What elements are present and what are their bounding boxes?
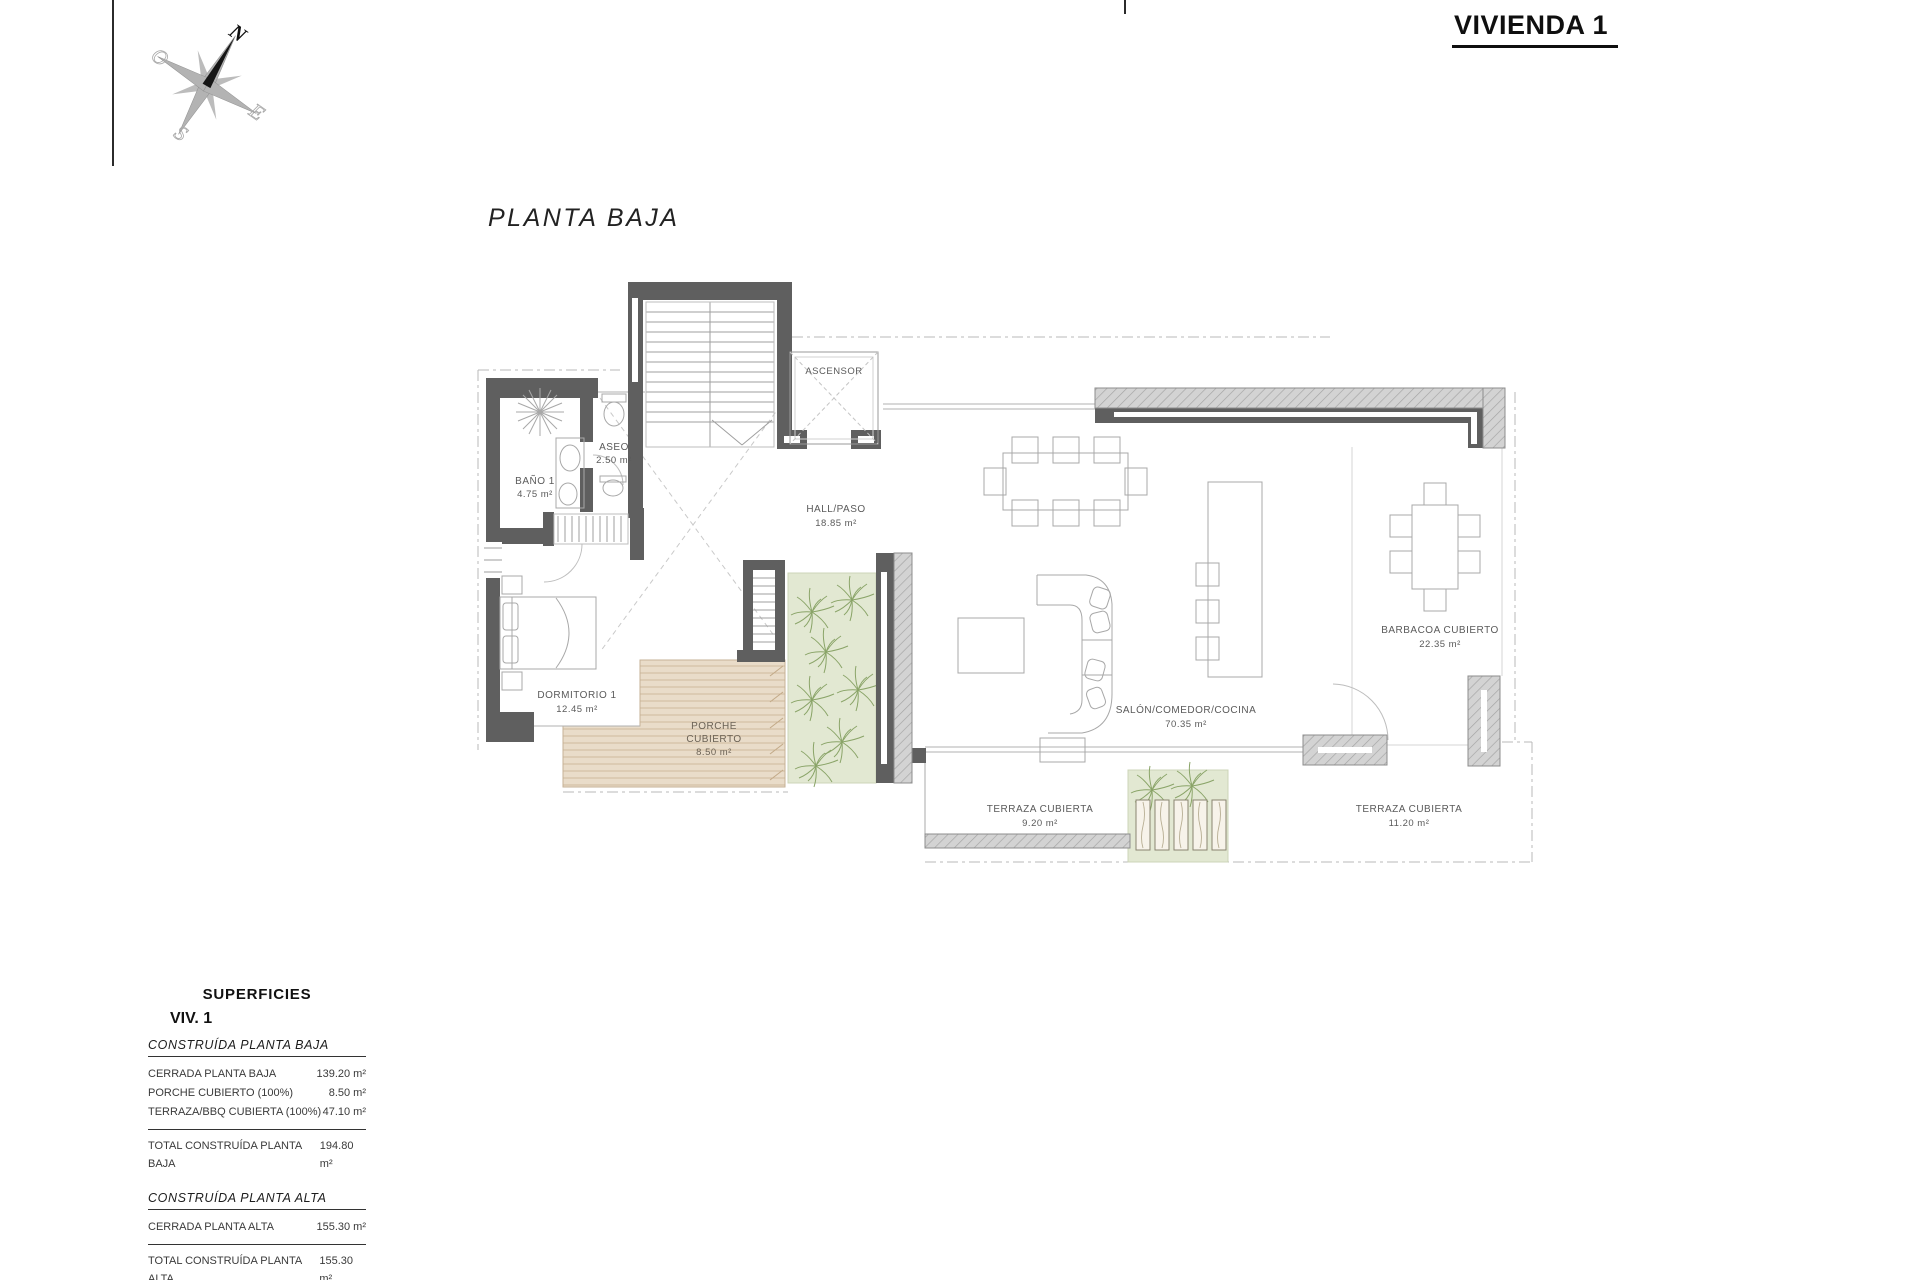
row-value: 139.20 m² [316, 1065, 366, 1084]
table-row: TERRAZA/BBQ CUBIERTA (100%) 47.10 m² [148, 1103, 366, 1122]
table-row: CERRADA PLANTA BAJA 139.20 m² [148, 1065, 366, 1084]
label-bano1-area: 4.75 m² [517, 489, 553, 500]
label-dormitorio1: DORMITORIO 1 [537, 690, 616, 701]
compass-rose-icon: N O S E [129, 7, 285, 163]
compass-s-label: S [170, 120, 193, 146]
coffee-table [958, 618, 1024, 673]
drawing-sheet: VIVIENDA 1 PLANTA BAJA [0, 0, 1920, 1280]
row-value: 47.10 m² [323, 1103, 366, 1122]
compass-o-label: O [147, 43, 173, 71]
label-bano1: BAÑO 1 [515, 474, 555, 487]
label-aseo-area: 2.50 m² [596, 455, 632, 466]
total-row-planta-alta: TOTAL CONSTRUÍDA PLANTA ALTA 155.30 m² [148, 1244, 366, 1280]
section-title-planta-alta: CONSTRUÍDA PLANTA ALTA [148, 1191, 366, 1210]
barbecue-table [1390, 483, 1480, 611]
surfaces-heading: SUPERFICIES [148, 986, 366, 1003]
compass-n-label: N [224, 18, 252, 47]
label-porche-area: 8.50 m² [696, 747, 732, 758]
row-value: 155.30 m² [316, 1218, 366, 1237]
compass-e-label: E [244, 98, 269, 126]
porch-deck [563, 660, 785, 787]
label-aseo: ASEO [599, 442, 629, 453]
total-value: 194.80 m² [320, 1137, 366, 1173]
label-barbacoa-area: 22.35 m² [1419, 639, 1461, 650]
row-label: PORCHE CUBIERTO (100%) [148, 1084, 293, 1103]
label-salon-area: 70.35 m² [1165, 719, 1207, 730]
label-terraza2: TERRAZA CUBIERTA [1356, 804, 1463, 815]
terrace-planter [1128, 762, 1228, 862]
ceiling-light-icon [516, 388, 564, 436]
row-label: CERRADA PLANTA ALTA [148, 1218, 274, 1237]
row-label: TERRAZA/BBQ CUBIERTA (100%) [148, 1103, 321, 1122]
surfaces-table: SUPERFICIES VIV. 1 CONSTRUÍDA PLANTA BAJ… [148, 986, 366, 1280]
label-terraza1: TERRAZA CUBIERTA [987, 804, 1094, 815]
label-barbacoa: BARBACOA CUBIERTO [1381, 625, 1499, 636]
sofa [1037, 575, 1112, 762]
label-hall: HALL/PASO [806, 504, 865, 515]
total-row-planta-baja: TOTAL CONSTRUÍDA PLANTA BAJA 194.80 m² [148, 1129, 366, 1173]
table-row: CERRADA PLANTA ALTA 155.30 m² [148, 1218, 366, 1237]
label-hall-area: 18.85 m² [815, 518, 857, 529]
total-value: 155.30 m² [319, 1252, 366, 1280]
section-title-planta-baja: CONSTRUÍDA PLANTA BAJA [148, 1038, 366, 1057]
garden-strip [788, 573, 880, 787]
bed [500, 576, 596, 690]
label-dormitorio1-area: 12.45 m² [556, 704, 598, 715]
label-salon: SALÓN/COMEDOR/COCINA [1116, 703, 1257, 716]
label-terraza2-area: 11.20 m² [1389, 818, 1430, 829]
label-porche: PORCHE [691, 721, 737, 732]
total-label: TOTAL CONSTRUÍDA PLANTA ALTA [148, 1252, 319, 1280]
table-row: PORCHE CUBIERTO (100%) 8.50 m² [148, 1084, 366, 1103]
unit-label: VIV. 1 [170, 1010, 366, 1028]
kitchen-island [1196, 482, 1262, 677]
label-ascensor: ASCENSOR [805, 366, 862, 377]
total-label: TOTAL CONSTRUÍDA PLANTA BAJA [148, 1137, 320, 1173]
label-terraza1-area: 9.20 m² [1022, 818, 1058, 829]
row-value: 8.50 m² [329, 1084, 366, 1103]
row-label: CERRADA PLANTA BAJA [148, 1065, 276, 1084]
label-porche-2: CUBIERTO [686, 734, 741, 745]
dining-table [984, 437, 1147, 526]
